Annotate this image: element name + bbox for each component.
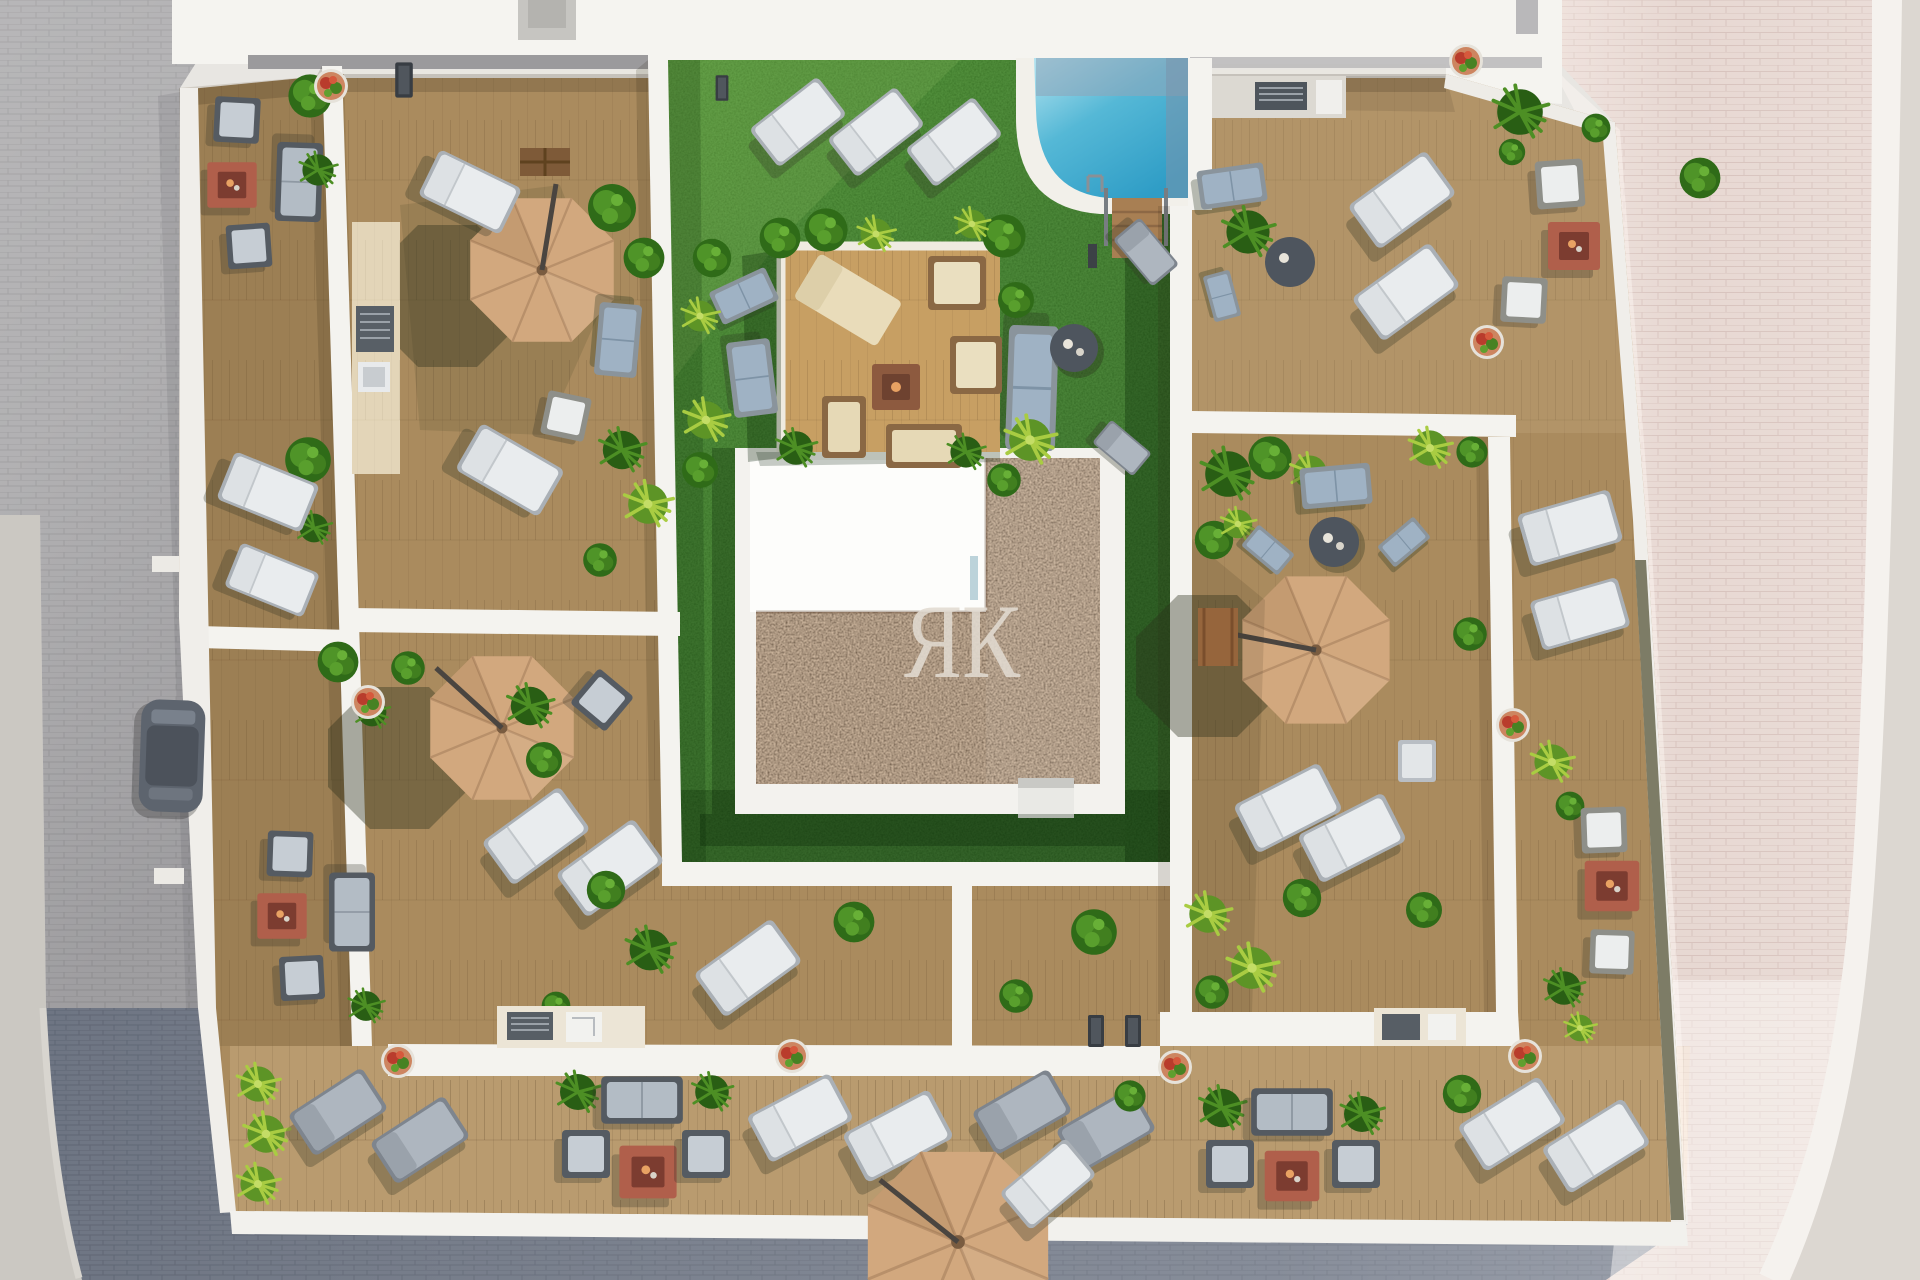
svg-text:ЯК: ЯК <box>904 583 1021 700</box>
